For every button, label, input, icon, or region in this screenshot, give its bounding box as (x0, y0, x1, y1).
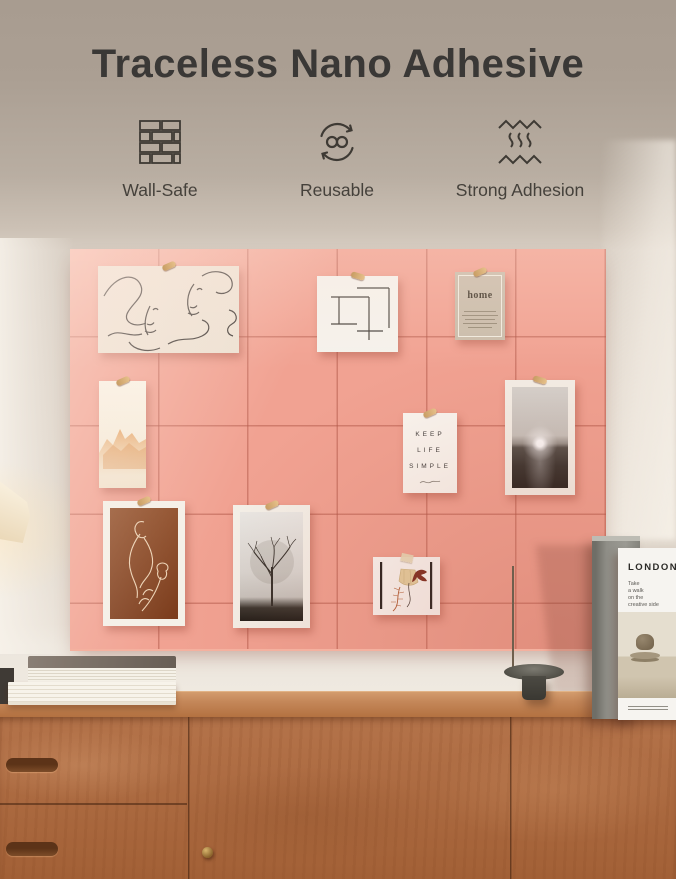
sunset-photo (512, 387, 568, 488)
quote-line: KEEP (403, 431, 457, 438)
drawer-handle (6, 842, 58, 856)
cabinet-seam (510, 717, 512, 879)
magazine-title: LONDON (628, 562, 676, 573)
drawer-seam (0, 803, 187, 805)
card-home-definition: home (455, 272, 505, 340)
adhesion-waves-icon (496, 118, 544, 166)
magazine-subtitle-line: Take (628, 581, 676, 588)
london-magazine: LONDON Take a walk on the creative side (618, 548, 676, 720)
card-tree-photo (233, 505, 310, 628)
magazine-subtitle: Take a walk on the creative side (628, 581, 676, 609)
feature-label-wall-safe: Wall-Safe (122, 180, 197, 200)
line-art-faces-drawing (98, 266, 239, 353)
stacked-book-bottom (8, 682, 176, 705)
feature-label-strong-adhesion: Strong Adhesion (456, 180, 584, 200)
woman-flower-line-art (110, 508, 178, 619)
reuse-cycle-icon (313, 118, 361, 166)
geometric-lines-drawing (317, 276, 398, 352)
push-pin (422, 407, 437, 418)
cabinet-seam (188, 717, 190, 879)
terracotta-drawing (110, 508, 178, 619)
signature-squiggle (419, 478, 441, 486)
tree-photo (240, 512, 303, 621)
incense-stick (512, 566, 514, 676)
magazine-footer-text (628, 704, 668, 712)
brick-wall-icon (137, 118, 183, 166)
card-terracotta-line-art (103, 501, 185, 626)
sideboard-front (0, 717, 676, 879)
home-card-text-lines (459, 311, 501, 328)
card-bird-fern (373, 557, 440, 615)
product-hero-image: Traceless Nano Adhesive Wall-Safe Reusab… (0, 0, 676, 879)
card-keep-life-simple: KEEP LIFE SIMPLE (403, 413, 457, 493)
magazine-subtitle-line: a walk (628, 588, 676, 595)
home-card-title: home (459, 290, 501, 301)
feature-reusable: Reusable (262, 118, 412, 201)
incense-holder-stem (522, 676, 546, 700)
pin-board: home KEEP LIFE SIMPLE (70, 249, 606, 651)
card-line-art-faces (98, 266, 239, 353)
card-mountain-watercolor (99, 381, 146, 488)
feature-strong-adhesion: Strong Adhesion (435, 118, 605, 201)
push-pin (532, 375, 547, 385)
card-geometric-lines (317, 276, 398, 352)
quote-line: LIFE (403, 447, 457, 454)
magazine-subtitle-line: on the (628, 595, 676, 602)
magazine-cover-photo (618, 612, 676, 698)
push-pin (136, 495, 151, 506)
drawer-handle (6, 758, 58, 772)
mountain-watercolor-drawing (99, 381, 146, 488)
page-title: Traceless Nano Adhesive (0, 42, 676, 87)
feature-label-reusable: Reusable (300, 180, 374, 200)
ceramic-pot (636, 634, 654, 650)
book-cover (28, 656, 176, 668)
card-sunset-photo (505, 380, 575, 495)
stacked-book-top (28, 656, 176, 682)
push-pin (264, 499, 279, 510)
bird-fern-drawing (373, 557, 440, 615)
wall-light-patch (602, 140, 676, 540)
door-knob (202, 847, 213, 858)
tree-silhouette (240, 512, 303, 621)
feature-wall-safe: Wall-Safe (85, 118, 235, 201)
ceramic-plate (630, 652, 660, 659)
home-card-inner: home (458, 275, 502, 337)
book-pages (28, 668, 176, 682)
quote-line: SIMPLE (403, 463, 457, 470)
magazine-subtitle-line: creative side (628, 602, 676, 609)
